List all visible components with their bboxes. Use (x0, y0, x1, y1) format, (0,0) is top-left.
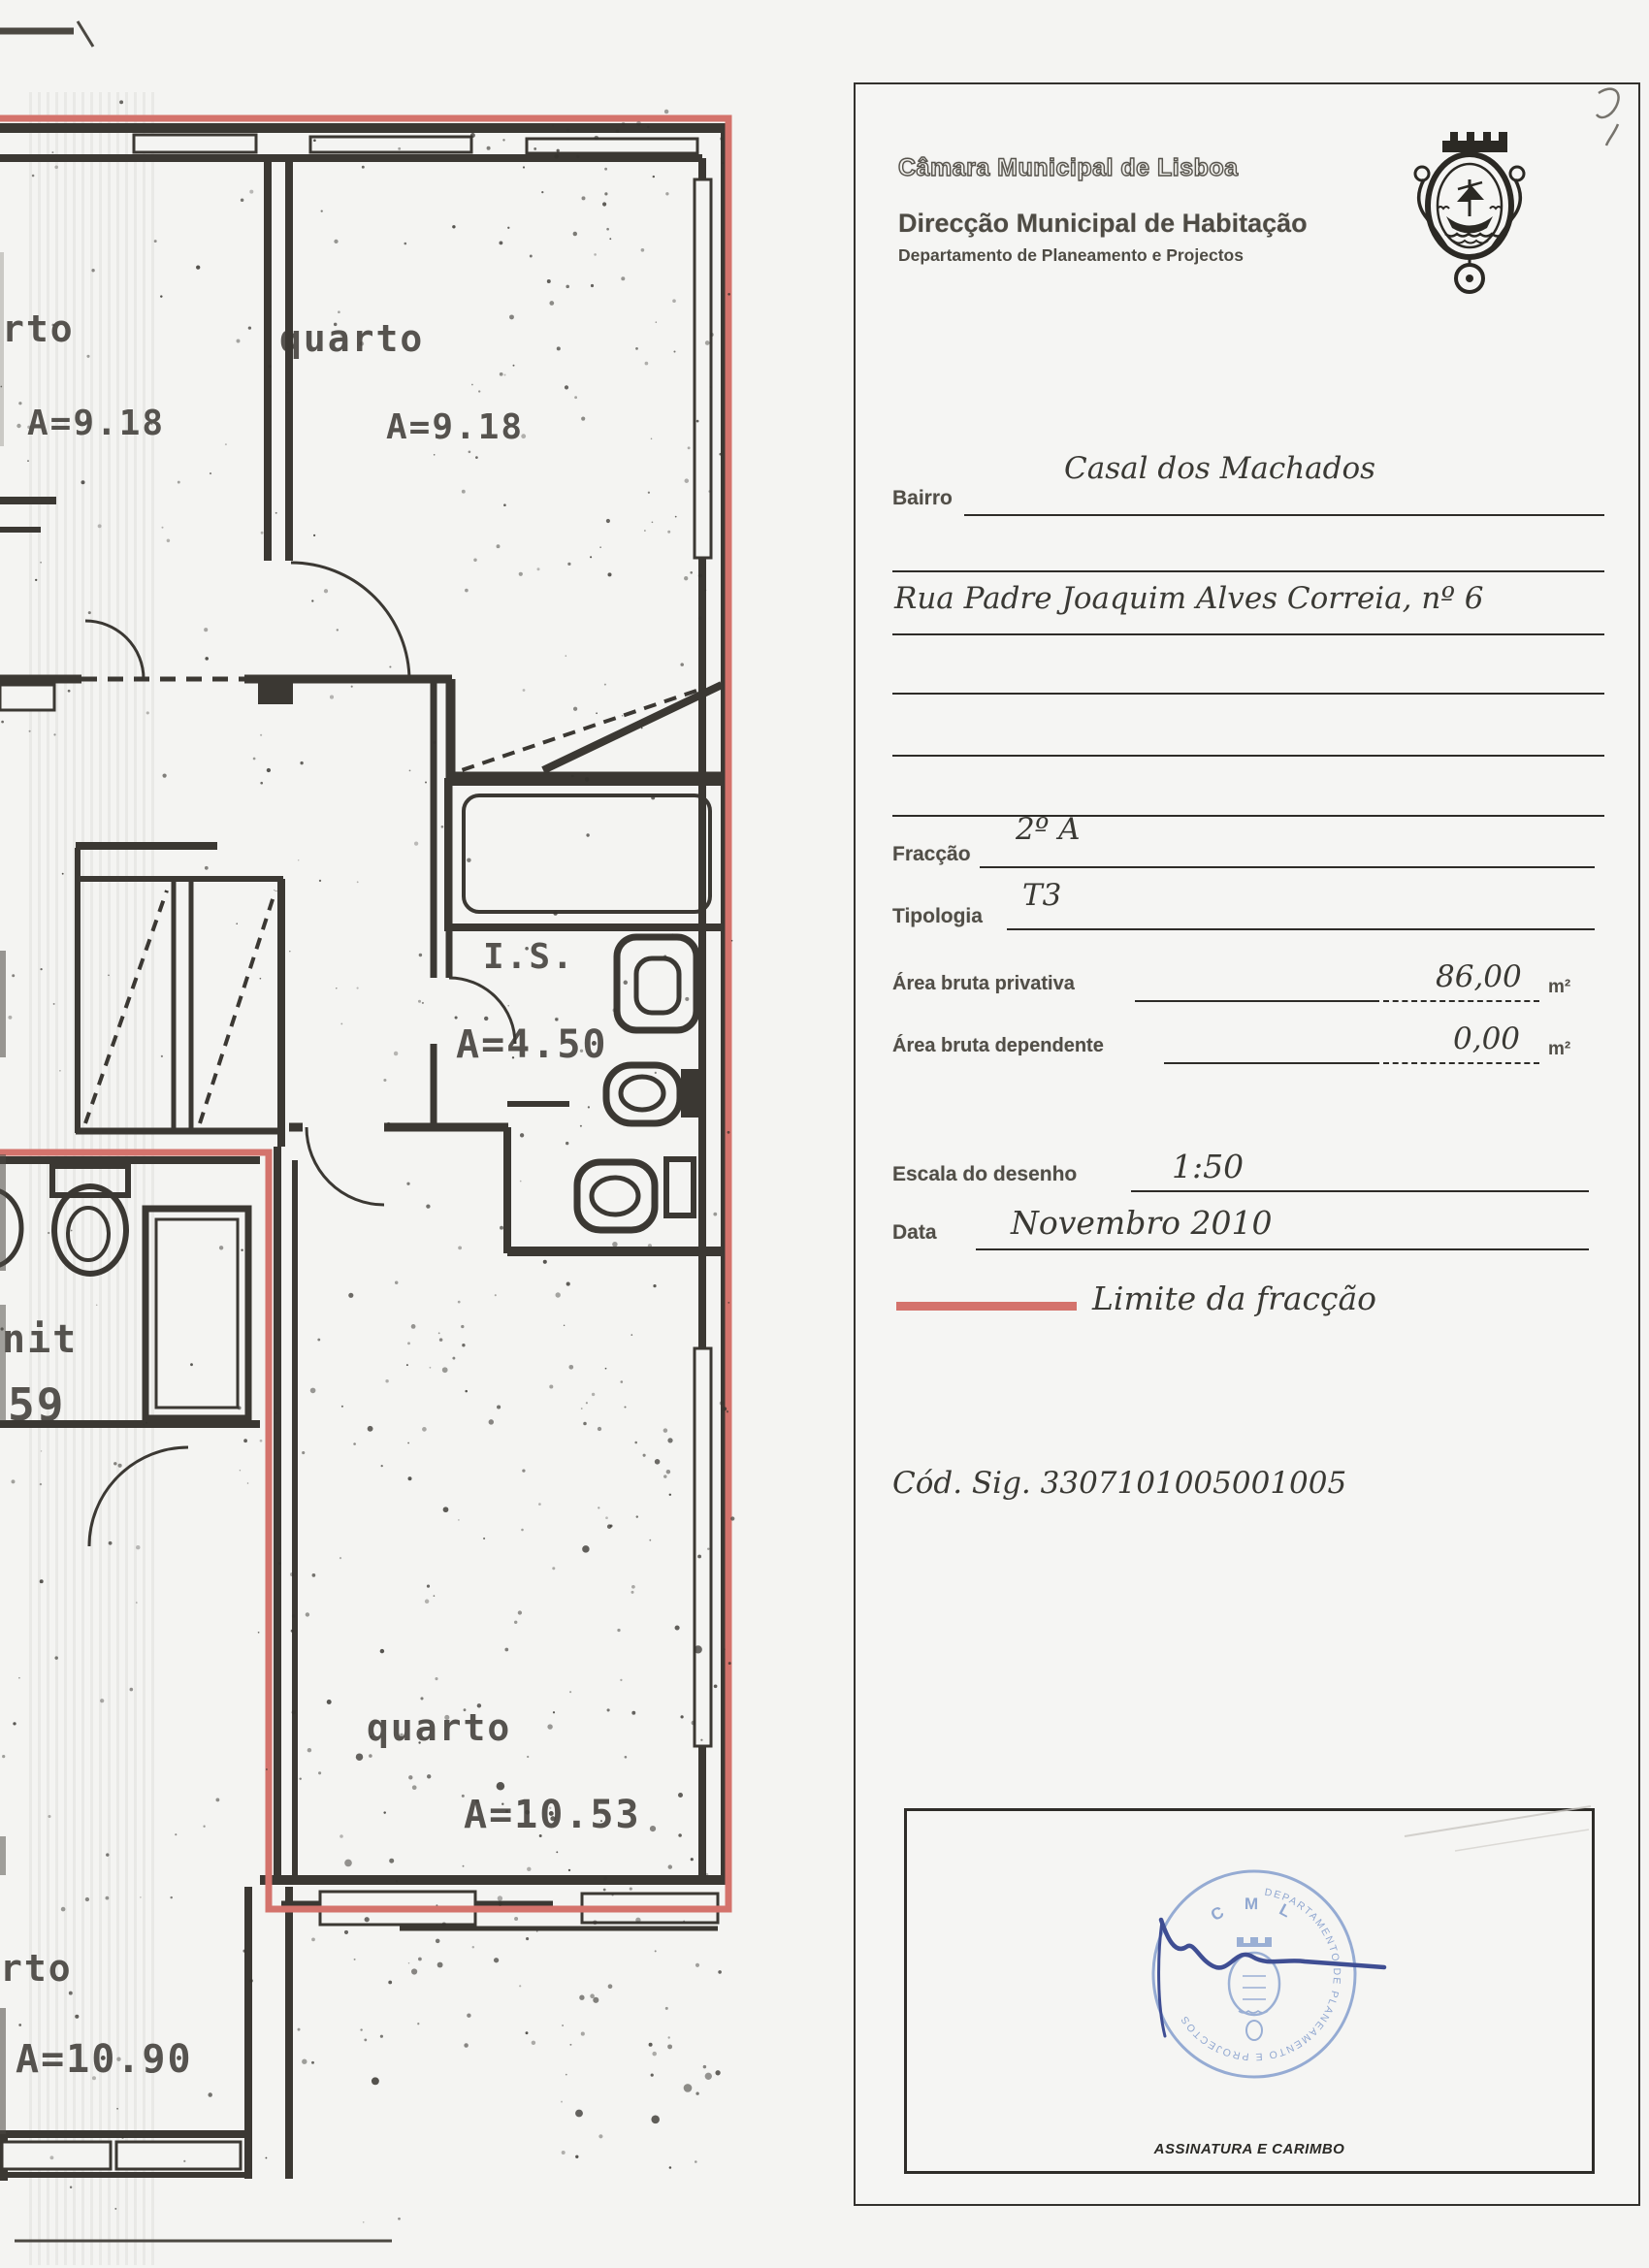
fraction-limit-legend-line (896, 1302, 1077, 1311)
bairro-label: Bairro (892, 487, 953, 510)
bidet-icon (577, 1159, 694, 1230)
escala-line (1131, 1190, 1589, 1192)
tipologia-line (1007, 928, 1595, 930)
fraction-limit-legend-label: Limite da fracção (1092, 1280, 1376, 1317)
washbasin-icon (617, 937, 696, 1030)
data-line (976, 1248, 1589, 1250)
direction-title: Direcção Municipal de Habitação (898, 209, 1308, 239)
area-privativa-label: Área bruta privativa (892, 973, 1075, 995)
address-line (892, 633, 1604, 635)
department-stamp: DEPARTAMENTO DE PLANEAMENTO E PROJECTOS … (907, 1811, 1586, 2165)
room-label-quarto-bottom-left: rto (0, 1947, 73, 1990)
area-privativa-line (1135, 1000, 1379, 1002)
room-label-is: I.S. (483, 937, 575, 977)
room-area-quarto-bottom: A=10.53 (464, 1793, 641, 1837)
fraccao-label: Fracção (892, 843, 971, 866)
tipologia-label: Tipologia (892, 905, 983, 928)
room-label-quarto-top: quarto (279, 317, 424, 360)
lisbon-coat-of-arms-logo (1377, 123, 1562, 312)
signature-box: DEPARTAMENTO DE PLANEAMENTO E PROJECTOS … (904, 1808, 1595, 2174)
area-dependente-unit: m² (1548, 1039, 1570, 1060)
area-privativa-unit: m² (1548, 977, 1570, 998)
area-dependente-dashes (1383, 1062, 1539, 1064)
room-area-quarto-top: A=9.18 (386, 407, 524, 447)
org-title: Câmara Municipal de Lisboa (898, 154, 1239, 182)
wc-icon (0, 1166, 128, 1274)
room-label-left-partial: nit (2, 1317, 78, 1362)
room-area-quarto-bottom-left: A=10.90 (16, 2037, 193, 2082)
area-privativa-value: 86,00 (1436, 959, 1522, 994)
room-area-left-partial: 59 (8, 1378, 65, 1431)
area-dependente-label: Área bruta dependente (892, 1035, 1104, 1057)
stamp-crest (1229, 1937, 1279, 2040)
signature-caption: ASSINATURA E CARIMBO (907, 2141, 1592, 2157)
bairro-line (964, 514, 1604, 516)
fraccao-line (980, 866, 1595, 868)
room-label-quarto-top-left: rto (2, 308, 75, 350)
blank-line-1 (892, 570, 1604, 572)
area-dependente-value: 0,00 (1453, 1021, 1520, 1056)
area-dependente-line (1164, 1062, 1379, 1064)
room-area-quarto-top-left: A=9.18 (27, 404, 165, 443)
tipologia-value: T3 (1022, 878, 1061, 913)
room-area-is: A=4.50 (456, 1022, 608, 1067)
cod-sig: Cód. Sig. 3307101005001005 (892, 1466, 1346, 1501)
bathtub-icon (448, 782, 726, 927)
address-value: Rua Padre Joaquim Alves Correia, nº 6 (894, 581, 1484, 616)
department-title: Departamento de Planeamento e Projectos (898, 245, 1244, 266)
blank-line-2 (892, 693, 1604, 695)
blank-line-4 (892, 815, 1604, 817)
escala-value: 1:50 (1172, 1148, 1244, 1185)
room-label-quarto-bottom: quarto (367, 1706, 511, 1749)
data-label: Data (892, 1221, 937, 1245)
escala-label: Escala do desenho (892, 1163, 1077, 1186)
blank-line-3 (892, 755, 1604, 757)
bairro-value: Casal dos Machados (1064, 451, 1375, 486)
data-value: Novembro 2010 (1011, 1204, 1272, 1242)
info-panel: Câmara Municipal de Lisboa Direcção Muni… (854, 82, 1640, 2206)
shower-cabinet-icon (145, 1209, 248, 1418)
toilet-icon (606, 1065, 706, 1123)
area-privativa-dashes (1383, 1000, 1539, 1002)
scanned-floor-plan-document: rto A=9.18 quarto A=9.18 I.S. A=4.50 qua… (0, 0, 1649, 2268)
floor-plan: rto A=9.18 quarto A=9.18 I.S. A=4.50 qua… (0, 0, 737, 2268)
fraccao-value: 2º A (1016, 812, 1081, 847)
